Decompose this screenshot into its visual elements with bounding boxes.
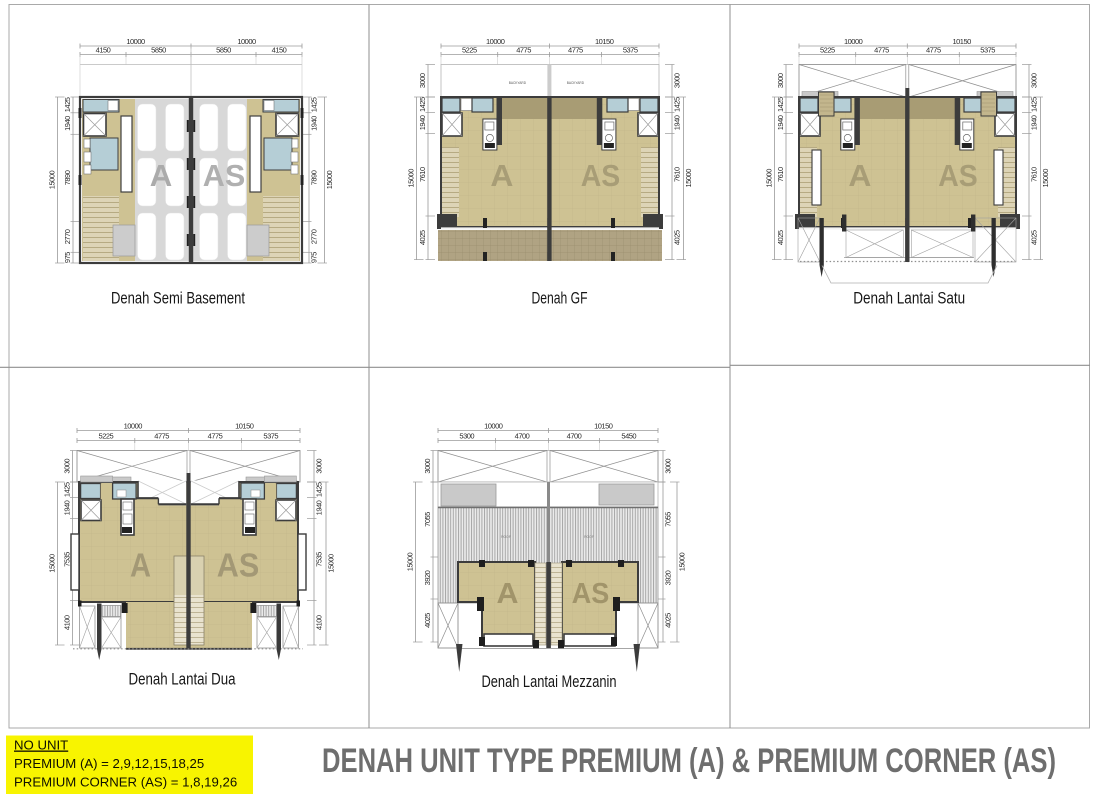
svg-text:4025: 4025 [776,230,785,245]
svg-text:1940: 1940 [310,116,319,131]
svg-text:10150: 10150 [595,37,614,46]
svg-text:5375: 5375 [623,45,638,54]
svg-text:4775: 4775 [926,45,941,54]
svg-text:7890: 7890 [63,170,72,185]
svg-text:15000: 15000 [684,169,693,188]
svg-text:10000: 10000 [844,37,863,46]
svg-text:5850: 5850 [151,45,166,54]
svg-text:1940: 1940 [63,116,72,131]
svg-text:15000: 15000 [407,169,416,188]
svg-text:A: A [150,158,173,193]
svg-text:3920: 3920 [423,570,432,585]
svg-text:15000: 15000 [1041,169,1050,188]
svg-text:5850: 5850 [216,45,231,54]
svg-text:10000: 10000 [124,421,143,430]
svg-text:3000: 3000 [418,73,427,88]
svg-text:5375: 5375 [263,431,278,440]
svg-text:AS: AS [938,158,978,193]
svg-text:1940: 1940 [418,115,427,130]
svg-text:A: A [490,158,513,193]
svg-text:PREMIUM (A) = 2,9,12,15,18,25: PREMIUM (A) = 2,9,12,15,18,25 [14,756,204,771]
svg-text:3000: 3000 [63,459,72,474]
svg-text:1940: 1940 [1030,115,1039,130]
svg-text:5375: 5375 [980,45,995,54]
svg-text:10000: 10000 [484,421,503,430]
svg-text:10150: 10150 [235,421,254,430]
svg-text:4025: 4025 [1030,230,1039,245]
svg-text:15000: 15000 [765,169,774,188]
svg-text:1425: 1425 [63,97,72,112]
svg-text:A: A [497,578,519,610]
svg-text:7055: 7055 [664,512,673,527]
svg-text:1425: 1425 [418,97,427,112]
svg-text:4100: 4100 [63,615,72,630]
svg-text:5225: 5225 [820,45,835,54]
svg-text:Denah Lantai Dua: Denah Lantai Dua [129,670,236,689]
svg-text:10150: 10150 [594,421,613,430]
svg-text:3000: 3000 [673,73,682,88]
svg-text:4025: 4025 [418,230,427,245]
svg-text:4150: 4150 [272,45,287,54]
svg-text:1425: 1425 [310,97,319,112]
svg-text:AS: AS [581,158,621,193]
svg-text:PREMIUM CORNER (AS) = 1,8,19,2: PREMIUM CORNER (AS) = 1,8,19,26 [14,775,237,790]
svg-text:1425: 1425 [315,482,324,497]
svg-text:AS: AS [203,158,246,193]
svg-text:15000: 15000 [325,170,334,189]
svg-text:Denah GF: Denah GF [532,289,588,308]
svg-text:3000: 3000 [776,73,785,88]
svg-text:1425: 1425 [776,97,785,112]
svg-text:A: A [130,547,151,584]
svg-text:10000: 10000 [237,37,256,46]
svg-text:5450: 5450 [621,431,636,440]
svg-text:1425: 1425 [1030,97,1039,112]
svg-text:3920: 3920 [664,570,673,585]
svg-text:5225: 5225 [462,45,477,54]
svg-text:4775: 4775 [208,431,223,440]
svg-text:3000: 3000 [315,459,324,474]
svg-text:7535: 7535 [315,552,324,567]
svg-text:NO UNIT: NO UNIT [14,738,68,753]
svg-text:1940: 1940 [315,500,324,515]
svg-text:Denah Semi Basement: Denah Semi Basement [111,289,245,308]
svg-text:15000: 15000 [678,552,687,571]
svg-text:15000: 15000 [48,170,57,189]
svg-text:1425: 1425 [63,482,72,497]
svg-text:15000: 15000 [327,554,336,573]
svg-text:4775: 4775 [568,45,583,54]
svg-text:15000: 15000 [406,552,415,571]
svg-text:4775: 4775 [154,431,169,440]
svg-text:975: 975 [310,252,319,263]
svg-text:A: A [848,158,871,193]
svg-text:4025: 4025 [664,613,673,628]
svg-text:15000: 15000 [48,554,57,573]
svg-text:3000: 3000 [664,459,673,474]
svg-text:5300: 5300 [459,431,474,440]
svg-text:7610: 7610 [418,167,427,182]
svg-text:7535: 7535 [63,552,72,567]
svg-text:ROOF: ROOF [501,535,511,539]
svg-text:4025: 4025 [423,613,432,628]
svg-text:4025: 4025 [673,230,682,245]
svg-text:10150: 10150 [952,37,971,46]
svg-text:7610: 7610 [776,167,785,182]
svg-text:Denah Lantai Mezzanin: Denah Lantai Mezzanin [482,672,617,691]
svg-text:2770: 2770 [63,229,72,244]
svg-text:DENAH UNIT TYPE PREMIUM (A) &: DENAH UNIT TYPE PREMIUM (A) & PREMIUM CO… [322,742,1056,780]
svg-text:BACKYARD: BACKYARD [509,81,527,85]
svg-text:4775: 4775 [874,45,889,54]
svg-text:4700: 4700 [515,431,530,440]
svg-text:1940: 1940 [63,500,72,515]
svg-text:975: 975 [63,252,72,263]
svg-text:7610: 7610 [1030,167,1039,182]
svg-text:1425: 1425 [673,97,682,112]
svg-text:3000: 3000 [1030,73,1039,88]
svg-text:10000: 10000 [126,37,145,46]
svg-text:4775: 4775 [516,45,531,54]
svg-text:5225: 5225 [99,431,114,440]
svg-text:AS: AS [217,547,260,584]
svg-text:1940: 1940 [673,115,682,130]
svg-text:BACKYARD: BACKYARD [567,81,585,85]
svg-text:7610: 7610 [673,167,682,182]
svg-text:7055: 7055 [423,512,432,527]
svg-text:AS: AS [572,578,610,610]
svg-text:4100: 4100 [315,615,324,630]
svg-text:1940: 1940 [776,115,785,130]
svg-text:4700: 4700 [567,431,582,440]
svg-text:3000: 3000 [423,459,432,474]
svg-text:2770: 2770 [310,229,319,244]
svg-text:4150: 4150 [96,45,111,54]
svg-text:Denah Lantai Satu: Denah Lantai Satu [853,289,965,308]
svg-text:10000: 10000 [486,37,505,46]
svg-text:ROOF: ROOF [584,535,594,539]
svg-text:7890: 7890 [310,170,319,185]
